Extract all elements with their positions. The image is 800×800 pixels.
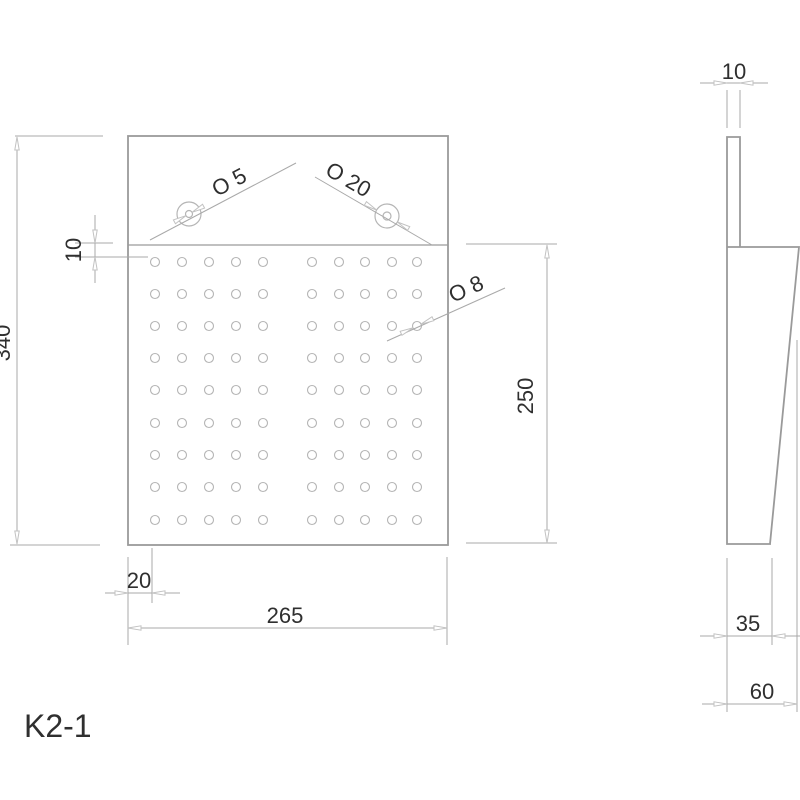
grid-hole	[205, 354, 214, 363]
dim-text-top-width: 60	[750, 679, 774, 704]
grid-hole	[151, 451, 160, 460]
grid-hole	[151, 258, 160, 267]
grid-hole	[232, 322, 241, 331]
countersink-left-inner-circle	[186, 211, 193, 218]
grid-hole	[335, 483, 344, 492]
arrow-icon	[784, 702, 797, 706]
grid-hole	[259, 516, 268, 525]
side-view	[727, 137, 799, 544]
grid-hole	[388, 483, 397, 492]
grid-hole	[259, 419, 268, 428]
grid-hole	[388, 290, 397, 299]
front-view	[128, 136, 448, 545]
grid-hole	[259, 354, 268, 363]
grid-hole	[388, 516, 397, 525]
grid-hole	[151, 419, 160, 428]
grid-hole	[205, 516, 214, 525]
grid-hole	[151, 322, 160, 331]
grid-hole	[259, 386, 268, 395]
grid-hole	[259, 322, 268, 331]
grid-hole	[232, 483, 241, 492]
grid-hole	[259, 290, 268, 299]
grid-hole	[335, 258, 344, 267]
grid-hole	[361, 386, 370, 395]
grid-hole	[308, 354, 317, 363]
grid-hole	[335, 386, 344, 395]
grid-hole	[232, 290, 241, 299]
countersink-hole-right	[375, 204, 399, 228]
dim-text-bottom-width: 35	[736, 611, 760, 636]
countersink-left-outer-circle	[177, 202, 201, 226]
drawing-title: K2-1	[24, 708, 92, 744]
grid-hole	[413, 290, 422, 299]
grid-hole	[361, 419, 370, 428]
grid-hole	[205, 451, 214, 460]
grid-hole	[413, 483, 422, 492]
dim-text-thickness: 10	[722, 59, 746, 84]
arrow-icon	[152, 591, 165, 595]
grid-hole	[259, 258, 268, 267]
grid-hole	[178, 483, 187, 492]
grid-hole	[335, 419, 344, 428]
grid-hole	[413, 516, 422, 525]
grid-hole	[259, 483, 268, 492]
label-large-hole-diameter: O 20	[322, 157, 376, 203]
front-dimensions: 340 10 250 20 265	[0, 136, 557, 645]
leader-line-large-hole	[315, 177, 432, 245]
grid-hole	[205, 258, 214, 267]
grid-hole	[413, 451, 422, 460]
grid-hole	[151, 354, 160, 363]
grid-hole	[388, 419, 397, 428]
grid-hole	[308, 290, 317, 299]
grid-hole	[178, 419, 187, 428]
grid-hole	[388, 258, 397, 267]
grid-hole	[205, 386, 214, 395]
grid-hole	[335, 322, 344, 331]
grid-hole	[308, 451, 317, 460]
grid-hole	[308, 516, 317, 525]
grid-hole	[308, 258, 317, 267]
grid-hole	[361, 483, 370, 492]
grid-hole	[361, 290, 370, 299]
grid-hole	[308, 386, 317, 395]
grid-hole	[178, 258, 187, 267]
label-small-hole-diameter: O 5	[208, 163, 251, 202]
hole-grid	[151, 258, 422, 525]
grid-hole	[388, 451, 397, 460]
dim-text-width: 265	[267, 603, 304, 628]
hole-leaders: O 5 O 20 O 8	[150, 157, 505, 341]
grid-hole	[308, 419, 317, 428]
grid-hole	[259, 451, 268, 460]
grid-hole	[388, 386, 397, 395]
technical-drawing: 340 10 250 20 265 O 5	[0, 0, 800, 800]
grid-hole	[178, 354, 187, 363]
arrow-icon	[714, 634, 727, 638]
grid-hole	[205, 483, 214, 492]
grid-hole	[361, 451, 370, 460]
grid-hole	[413, 258, 422, 267]
grid-hole	[232, 258, 241, 267]
grid-hole	[151, 516, 160, 525]
arrow-icon	[400, 326, 414, 335]
grid-hole	[178, 451, 187, 460]
arrow-icon	[93, 257, 97, 270]
arrow-icon	[15, 531, 19, 544]
grid-hole	[335, 516, 344, 525]
grid-hole	[232, 451, 241, 460]
arrow-icon	[93, 230, 97, 243]
front-plate-outline	[128, 136, 448, 545]
grid-hole	[178, 386, 187, 395]
countersink-right-outer-circle	[375, 204, 399, 228]
arrow-icon	[545, 530, 549, 543]
dim-text-strip-offset: 10	[61, 238, 86, 262]
grid-hole	[205, 419, 214, 428]
countersink-hole-left	[177, 202, 201, 226]
grid-hole	[361, 322, 370, 331]
arrow-icon	[128, 626, 141, 630]
grid-hole	[308, 483, 317, 492]
arrow-icon	[714, 702, 727, 706]
grid-hole	[232, 516, 241, 525]
grid-hole	[413, 386, 422, 395]
grid-hole	[151, 290, 160, 299]
grid-hole	[335, 451, 344, 460]
grid-hole	[361, 516, 370, 525]
grid-hole	[335, 290, 344, 299]
grid-hole	[388, 322, 397, 331]
arrow-icon	[434, 626, 447, 630]
dim-text-hole-field-height: 250	[513, 378, 538, 415]
grid-hole	[335, 354, 344, 363]
grid-hole	[361, 258, 370, 267]
arrow-icon	[545, 245, 549, 258]
grid-hole	[388, 354, 397, 363]
grid-hole	[413, 419, 422, 428]
grid-hole	[232, 419, 241, 428]
grid-hole	[205, 290, 214, 299]
grid-hole	[178, 322, 187, 331]
side-profile-outline	[727, 137, 799, 544]
dim-text-edge-offset: 20	[127, 568, 151, 593]
dim-text-height: 340	[0, 325, 15, 362]
grid-hole	[308, 322, 317, 331]
grid-hole	[178, 516, 187, 525]
arrow-icon	[772, 634, 785, 638]
grid-hole	[232, 354, 241, 363]
grid-hole	[232, 386, 241, 395]
grid-hole	[178, 290, 187, 299]
grid-hole	[205, 322, 214, 331]
grid-hole	[151, 386, 160, 395]
grid-hole	[413, 354, 422, 363]
arrow-icon	[15, 137, 19, 150]
grid-hole	[151, 483, 160, 492]
grid-hole	[361, 354, 370, 363]
label-grid-hole-diameter: O 8	[445, 270, 488, 307]
